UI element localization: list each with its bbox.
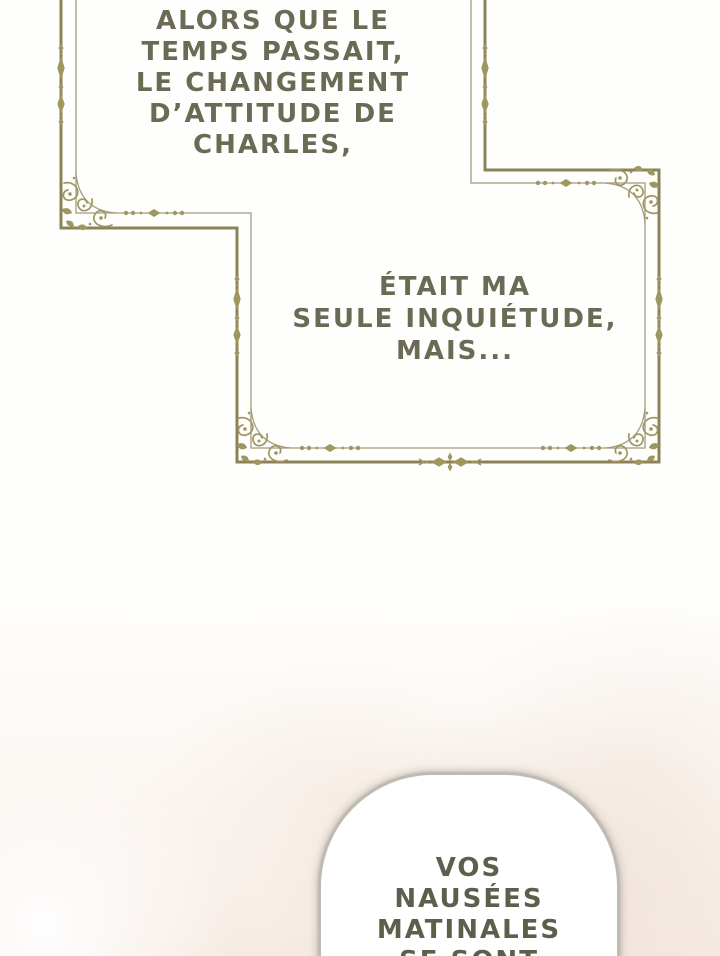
narration-line: ALORS QUE LE: [93, 6, 453, 37]
comic-page: ALORS QUE LE TEMPS PASSAIT, LE CHANGEMEN…: [0, 0, 720, 956]
speech-bubble-line: NAUSÉES: [321, 884, 617, 915]
narration-line: LE CHANGEMENT: [93, 68, 453, 99]
narration-line: D’ATTITUDE DE: [93, 99, 453, 130]
narration-line: SEULE INQUIÉTUDE,: [275, 303, 635, 335]
narration-line: TEMPS PASSAIT,: [93, 37, 453, 68]
narration-caption-top: ALORS QUE LE TEMPS PASSAIT, LE CHANGEMEN…: [93, 6, 453, 161]
speech-bubble-line: MATINALES: [321, 915, 617, 946]
narration-caption-middle: ÉTAIT MA SEULE INQUIÉTUDE, MAIS...: [275, 271, 635, 367]
narration-line: MAIS...: [275, 335, 635, 367]
speech-bubble: VOS NAUSÉES MATINALES SE SONT: [318, 772, 620, 956]
narration-line: CHARLES,: [93, 130, 453, 161]
speech-bubble-line: VOS: [321, 853, 617, 884]
narration-line: ÉTAIT MA: [275, 271, 635, 303]
speech-bubble-line: SE SONT: [321, 946, 617, 956]
